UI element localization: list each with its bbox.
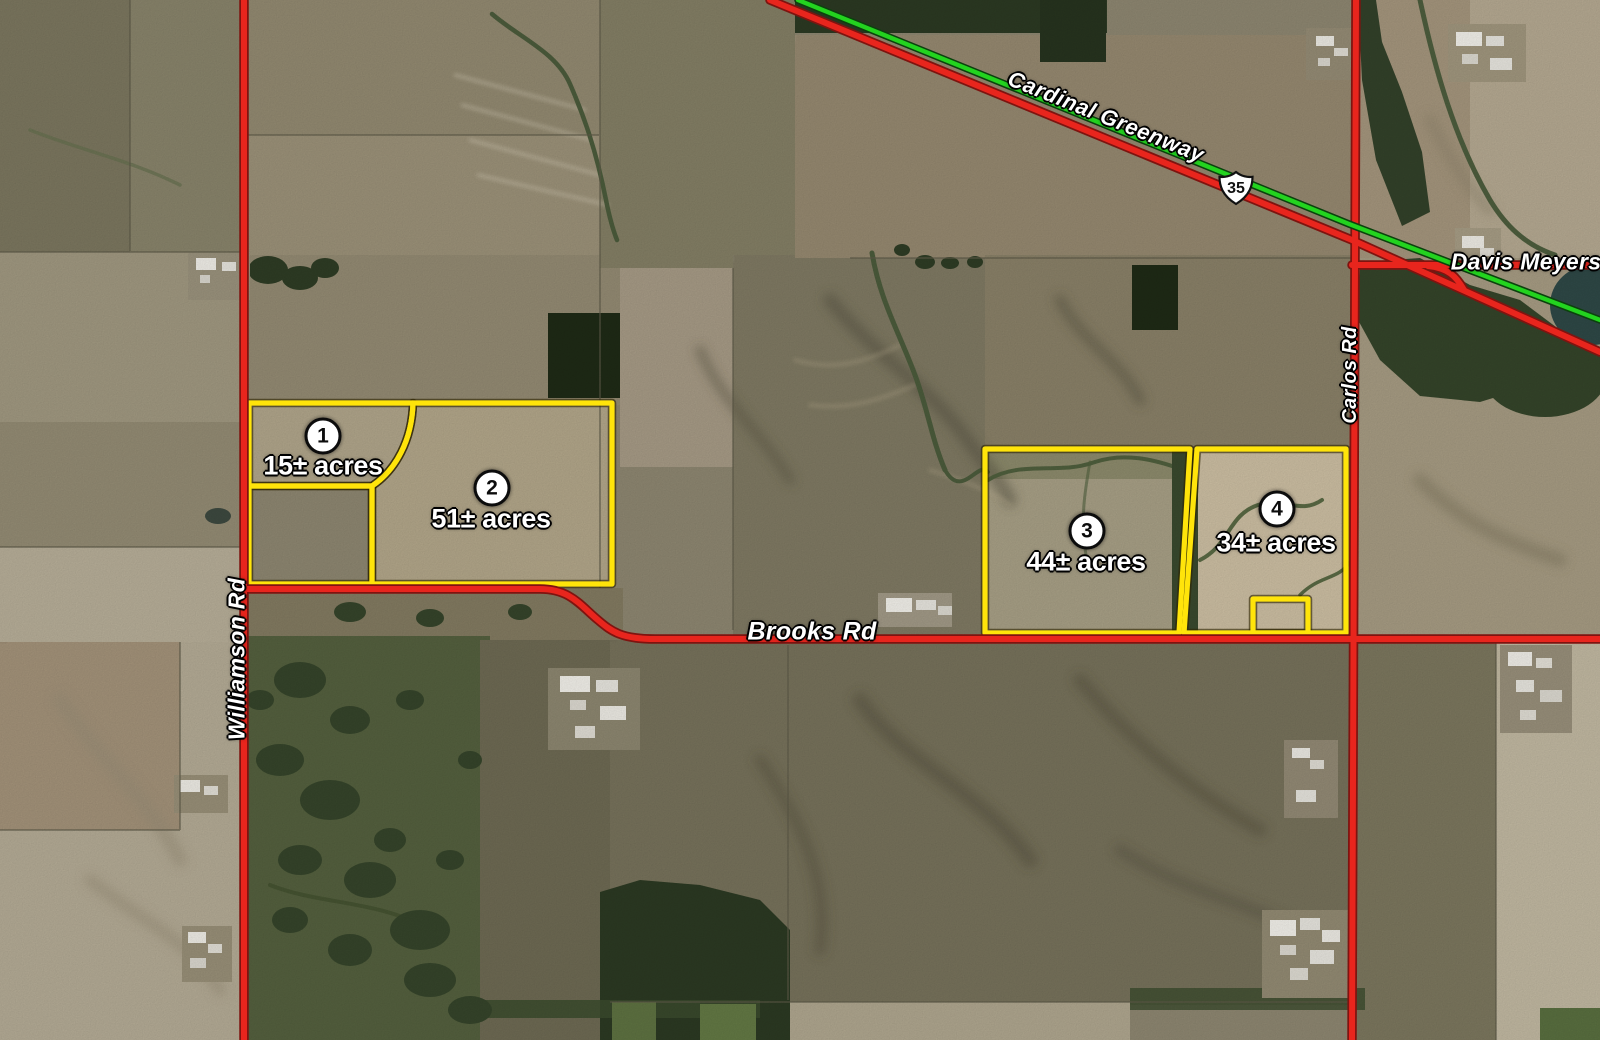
- parcel-4-acreage: 34± acres: [1216, 530, 1335, 557]
- road-label-davis-meyers: Davis Meyers Rd: [1451, 251, 1600, 274]
- satellite-imagery: [0, 0, 1600, 1040]
- parcel-3-badge: 3: [1069, 513, 1106, 550]
- parcel-3-acreage: 44± acres: [1026, 549, 1145, 576]
- aerial-parcel-map: 1 15± acres 2 51± acres 3 44± acres 4 34…: [0, 0, 1600, 1040]
- parcel-2-acreage: 51± acres: [431, 506, 550, 533]
- parcel-1-badge: 1: [305, 418, 342, 455]
- road-label-williamson: Williamson Rd: [226, 578, 249, 740]
- route-number: 35: [1227, 180, 1245, 197]
- us-35-route-shield: 35: [1217, 170, 1255, 206]
- parcel-4-badge: 4: [1259, 491, 1296, 528]
- road-label-brooks: Brooks Rd: [747, 620, 876, 645]
- road-label-carlos: Carlos Rd: [1340, 326, 1360, 423]
- parcel-2-badge: 2: [474, 470, 511, 507]
- parcel-1-acreage: 15± acres: [263, 453, 382, 480]
